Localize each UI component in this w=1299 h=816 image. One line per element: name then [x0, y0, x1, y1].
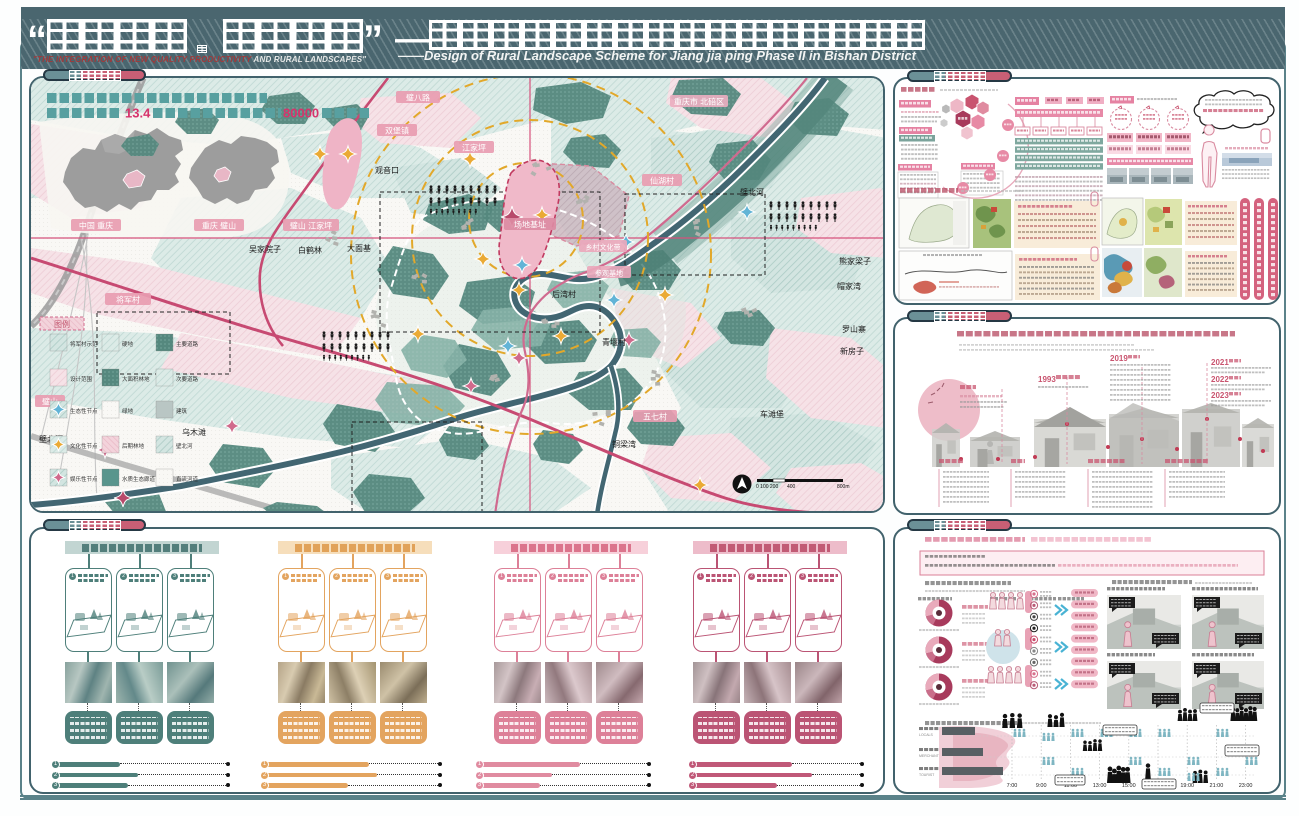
svg-text:大面积林地: 大面积林地	[122, 375, 150, 383]
svg-text:重庆 璧山: 重庆 璧山	[202, 221, 236, 231]
svg-text:13:00: 13:00	[1093, 783, 1107, 789]
svg-text:文化性节点: 文化性节点	[70, 442, 98, 450]
svg-text:1993: 1993	[1038, 375, 1056, 384]
svg-text:7:00: 7:00	[1007, 783, 1018, 789]
svg-text:水质生态廊道: 水质生态廊道	[122, 475, 156, 483]
svg-text:双堡镇: 双堡镇	[385, 126, 409, 136]
svg-text:19:00: 19:00	[1180, 783, 1194, 789]
svg-text:参观基地: 参观基地	[595, 269, 623, 278]
svg-text:9:00: 9:00	[1036, 783, 1047, 789]
svg-text:后湾村: 后湾村	[552, 289, 576, 299]
svg-text:帽家湾: 帽家湾	[837, 281, 861, 291]
svg-text:观音口: 观音口	[375, 165, 399, 175]
svg-text:13.4: 13.4	[125, 106, 151, 121]
svg-text:生态性节点: 生态性节点	[70, 407, 98, 415]
svg-text:2023: 2023	[1211, 391, 1229, 400]
svg-text:21:00: 21:00	[1210, 783, 1224, 789]
svg-text:场地基址: 场地基址	[514, 220, 546, 230]
svg-text:吴家院子: 吴家院子	[249, 244, 281, 254]
svg-text:15:00: 15:00	[1122, 783, 1136, 789]
svg-text:23:00: 23:00	[1239, 783, 1253, 789]
svg-text:400: 400	[787, 484, 796, 490]
svg-text:80000: 80000	[283, 106, 319, 121]
svg-text:将军村示范: 将军村示范	[70, 340, 98, 348]
svg-text:MERCHANT: MERCHANT	[919, 754, 940, 758]
svg-text:车滩堡: 车滩堡	[760, 409, 784, 419]
svg-text:硬地: 硬地	[122, 340, 134, 348]
svg-text:2021: 2021	[1211, 358, 1229, 367]
svg-text:0 100 200: 0 100 200	[756, 484, 778, 490]
svg-text:主要道路: 主要道路	[176, 340, 199, 348]
svg-text:白鹤林: 白鹤林	[298, 245, 322, 255]
svg-text:次要道路: 次要道路	[176, 375, 199, 383]
svg-text:乡村文化带: 乡村文化带	[586, 243, 621, 252]
svg-text:娱乐性节点: 娱乐性节点	[70, 475, 98, 483]
svg-text:江家坪: 江家坪	[462, 143, 486, 153]
svg-text:2019: 2019	[1110, 354, 1128, 363]
svg-text:设计范围: 设计范围	[70, 375, 93, 383]
svg-text:重庆市 北碚区: 重庆市 北碚区	[674, 97, 724, 107]
svg-text:新房子: 新房子	[840, 346, 864, 356]
svg-text:图例: 图例	[54, 319, 70, 329]
svg-text:五七村: 五七村	[643, 412, 667, 422]
svg-text:罗山寨: 罗山寨	[842, 324, 866, 334]
svg-text:熊家梁子: 熊家梁子	[839, 256, 871, 266]
svg-text:大面基: 大面基	[347, 243, 371, 253]
svg-text:壁北河: 壁北河	[176, 442, 193, 450]
svg-text:铜梁湾: 铜梁湾	[612, 439, 636, 449]
svg-text:将军村: 将军村	[116, 295, 140, 305]
svg-text:绿地: 绿地	[122, 407, 134, 415]
svg-text:800m: 800m	[837, 484, 850, 490]
svg-text:青堰村: 青堰村	[602, 337, 626, 347]
svg-text:乌木滩: 乌木滩	[182, 427, 206, 437]
svg-text:璧山 江家坪: 璧山 江家坪	[290, 221, 332, 231]
svg-text:2022: 2022	[1211, 375, 1229, 384]
svg-text:TOURIST: TOURIST	[919, 773, 935, 777]
svg-text:后期林地: 后期林地	[122, 442, 145, 450]
svg-text:仙湖村: 仙湖村	[650, 176, 674, 186]
svg-text:建筑: 建筑	[176, 407, 188, 415]
svg-text:LOCALS: LOCALS	[919, 733, 933, 737]
svg-text:中国 重庆: 中国 重庆	[79, 221, 113, 231]
svg-text:璧北河: 璧北河	[740, 187, 764, 197]
svg-text:直流河道: 直流河道	[176, 475, 199, 483]
svg-text:璧八路: 璧八路	[406, 93, 430, 103]
